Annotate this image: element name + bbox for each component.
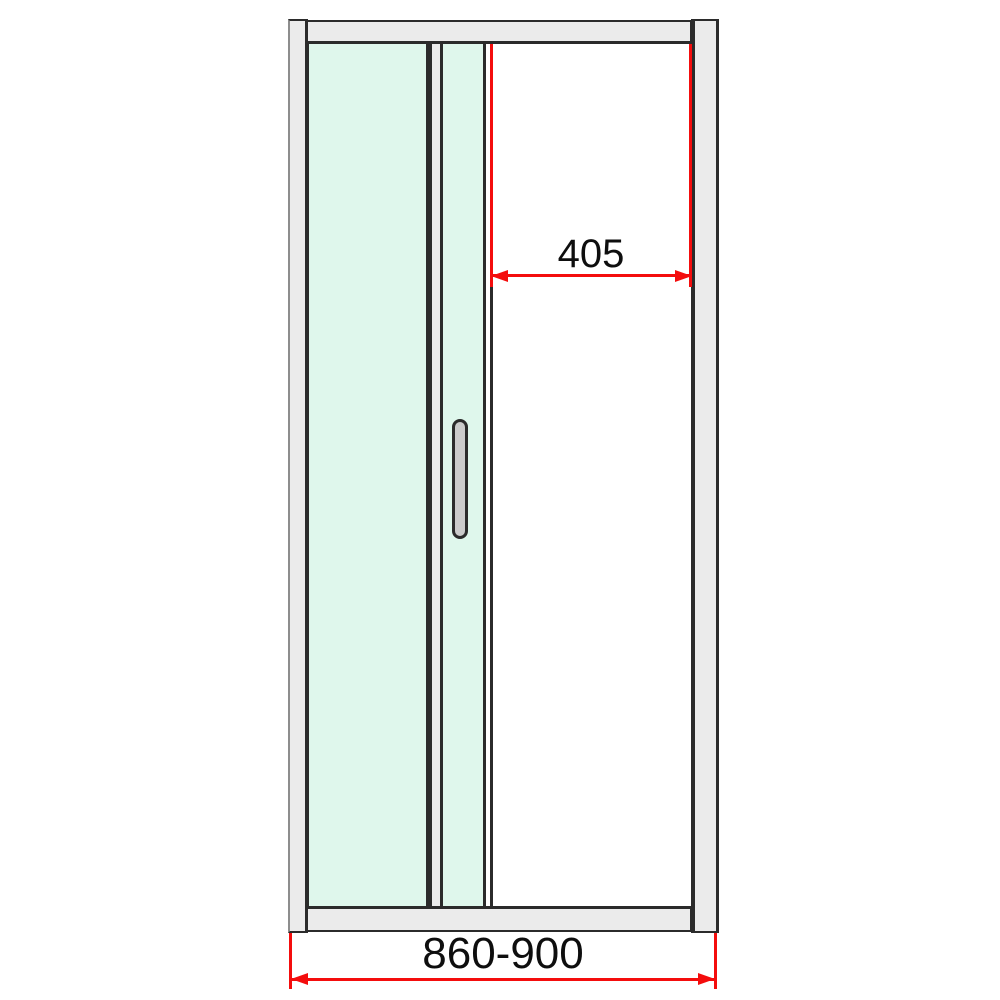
left-wall-profile [288,19,308,933]
overall-dimension-line [290,978,716,981]
top-rail [306,20,692,44]
fixed-glass-panel [306,44,429,906]
overall-width-label: 860-900 [290,932,716,976]
door-handle [452,419,468,539]
shower-door-diagram: 405 860-900 [0,0,1000,1000]
door-stile [429,44,443,906]
right-wall-profile [691,19,719,933]
opening-width-label: 405 [490,234,692,274]
